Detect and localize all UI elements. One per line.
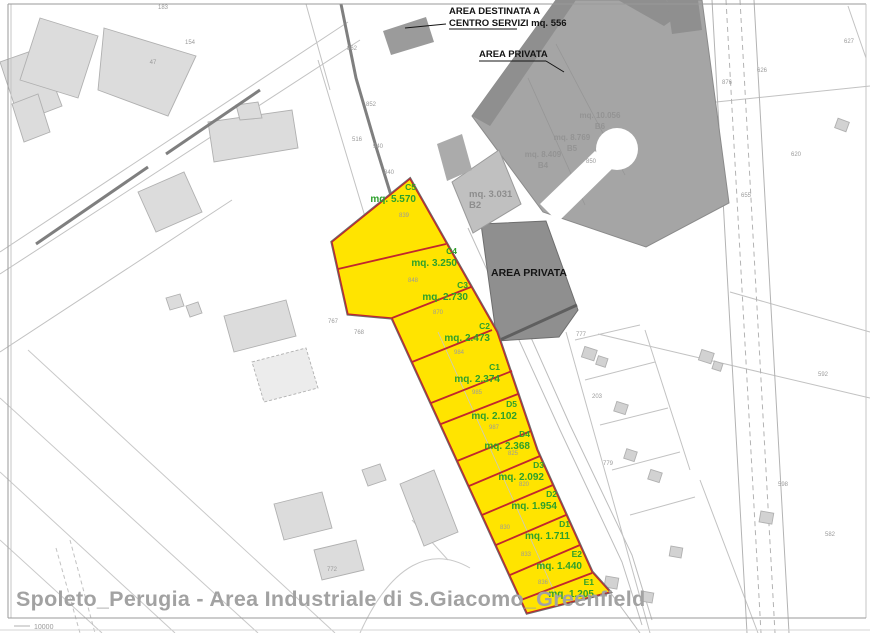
lot-id-label: C2 xyxy=(479,321,490,331)
parcel-number: 772 xyxy=(327,567,338,573)
cadastral-map: C5mq. 5.570C4mq. 3.250C3mq. 2.730C2mq. 2… xyxy=(0,0,870,633)
gray-lot-id-label: B5 xyxy=(567,144,578,153)
parcel-number: 820 xyxy=(519,482,530,488)
parcel-number: 985 xyxy=(472,390,483,396)
lot-id-label: C5 xyxy=(405,182,416,192)
parcel-number: 777 xyxy=(576,332,587,338)
parcel-number: 984 xyxy=(454,350,465,356)
building xyxy=(224,300,296,352)
private-area-mid xyxy=(481,221,578,341)
building xyxy=(314,540,364,580)
parcel-number: 620 xyxy=(791,152,802,158)
gray-lot-id-label: B4 xyxy=(538,161,549,170)
parcel-number: 825 xyxy=(508,451,519,457)
lot-area-label: mq. 2.374 xyxy=(454,374,500,385)
building xyxy=(166,294,184,310)
parcel-number: 830 xyxy=(500,525,511,531)
building xyxy=(98,28,196,116)
parcel-number: 839 xyxy=(399,213,410,219)
lot-id-label: D2 xyxy=(546,489,557,499)
building xyxy=(400,470,458,546)
page-title: Spoleto_Perugia - Area Industriale di S.… xyxy=(16,587,646,611)
private-area-notch xyxy=(667,0,702,34)
parcel-number: 203 xyxy=(592,394,603,400)
parcel-number: 870 xyxy=(433,310,444,316)
map-page: C5mq. 5.570C4mq. 3.250C3mq. 2.730C2mq. 2… xyxy=(0,0,870,633)
parcel-number: 655 xyxy=(741,193,752,199)
lot-area-label: mq. 1.954 xyxy=(511,501,557,512)
parcel-number: 848 xyxy=(408,278,419,284)
lot-area-label: mq. 1.711 xyxy=(525,531,570,542)
parcel-number: 626 xyxy=(757,68,768,74)
parcel-number: 876 xyxy=(722,80,733,86)
building-hatched xyxy=(252,348,318,402)
parcel-number: 987 xyxy=(489,425,500,431)
lot-id-label: D3 xyxy=(533,460,544,470)
parcel-number: 836 xyxy=(538,580,549,586)
parcel-number: 582 xyxy=(825,532,836,538)
lot-area-label: mq. 5.570 xyxy=(370,194,416,205)
top-note-line1: AREA DESTINATA A xyxy=(449,6,540,17)
lot-id-label: E2 xyxy=(572,549,583,559)
lot-id-label: C3 xyxy=(457,280,468,290)
top-note-line2: CENTRO SERVIZI mq. 556 xyxy=(449,18,567,29)
lot-id-label: D5 xyxy=(506,399,517,409)
gray-lot-area-label: mq. 8.769 xyxy=(554,133,591,142)
gray-lot-area-label: mq. 8.409 xyxy=(525,150,562,159)
lot-id-label: E1 xyxy=(584,577,595,587)
building xyxy=(274,492,332,540)
parcel-number: 852 xyxy=(366,102,377,108)
lot-id-label: C4 xyxy=(446,246,457,256)
parcel-number: 592 xyxy=(818,372,829,378)
scale-note: 10000 xyxy=(34,624,54,631)
building xyxy=(138,172,202,232)
parcel-number: 627 xyxy=(844,39,855,45)
lot-area-label: mq. 1.440 xyxy=(536,561,582,572)
gray-lot-area-label: mq. 10.056 xyxy=(580,111,621,120)
parcel-number: 598 xyxy=(778,482,789,488)
parcel-number: 516 xyxy=(352,137,363,143)
area-privata-mid-label: AREA PRIVATA xyxy=(491,267,567,279)
parcel-number: 862 xyxy=(347,46,358,52)
lot-area-label: mq. 2.730 xyxy=(422,292,468,303)
culdesac-circle xyxy=(596,128,638,170)
parcel-number: 840 xyxy=(384,170,395,176)
building xyxy=(362,464,386,486)
building-dark xyxy=(383,17,434,55)
parcel-number: 183 xyxy=(158,5,169,11)
lot-area-label: mq. 3.250 xyxy=(411,258,457,269)
yellow-lots-layer xyxy=(332,179,610,613)
gray-lot-area-label: mq. 3.031 xyxy=(469,189,513,200)
parcel-number: 767 xyxy=(328,319,339,325)
yellow-lots-outline xyxy=(332,179,610,613)
parcel-number: 779 xyxy=(603,461,614,467)
gray-lot-id-label: B2 xyxy=(469,200,481,211)
lot-area-label: mq. 2.473 xyxy=(444,333,490,344)
lot-id-label: D1 xyxy=(559,519,570,529)
parcel-number: 154 xyxy=(185,40,196,46)
parcel-number: 850 xyxy=(586,159,597,165)
parcel-number: 940 xyxy=(373,144,384,150)
area-privata-top-label: AREA PRIVATA xyxy=(479,49,548,60)
building xyxy=(186,302,202,317)
gray-lot-id-label: B6 xyxy=(595,122,606,131)
parcel-number: 768 xyxy=(354,330,365,336)
lot-id-label: D4 xyxy=(519,429,530,439)
lot-area-label: mq. 2.102 xyxy=(471,411,517,422)
parcel-number: 47 xyxy=(150,60,157,66)
lot-id-label: C1 xyxy=(489,362,500,372)
parcel-number: 833 xyxy=(521,552,532,558)
